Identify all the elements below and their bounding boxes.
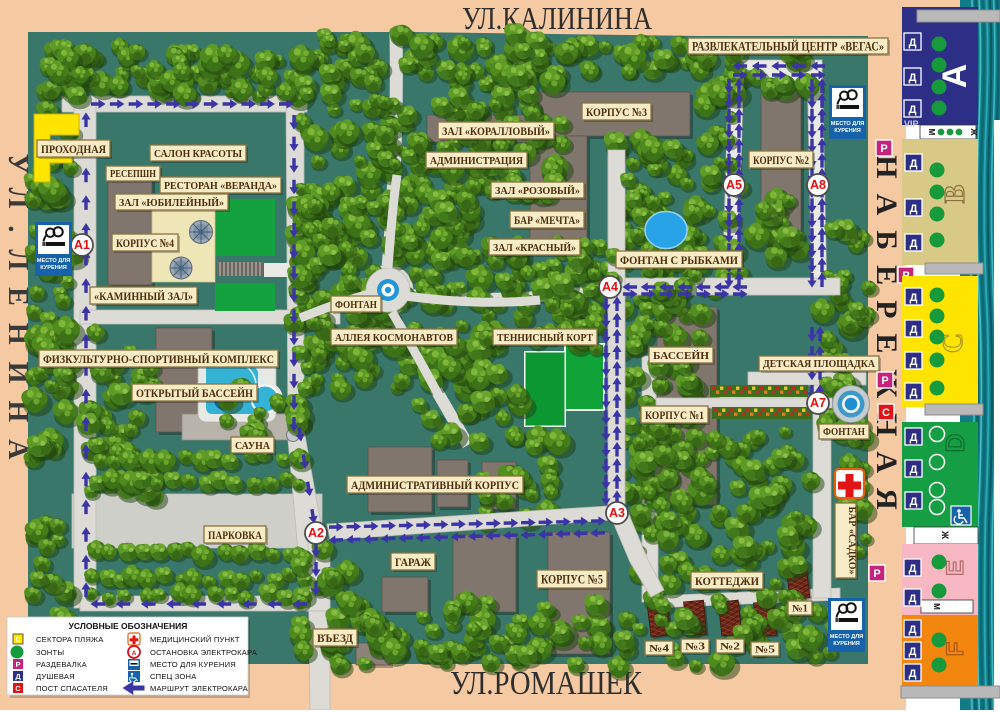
svg-text:Д: Д (909, 72, 917, 84)
svg-text:А2: А2 (308, 526, 324, 540)
svg-text:А4: А4 (602, 280, 618, 294)
svg-text:ДУШЕВАЯ: ДУШЕВАЯ (36, 672, 75, 681)
svg-text:ТЕННИСНЫЙ КОРТ: ТЕННИСНЫЙ КОРТ (497, 332, 594, 344)
svg-text:Ж: Ж (969, 127, 978, 136)
svg-text:Д: Д (909, 593, 917, 605)
svg-text:ГАРАЖ: ГАРАЖ (395, 555, 431, 569)
svg-text:ЗАЛ «ЮБИЛЕЙНЫЙ»: ЗАЛ «ЮБИЛЕЙНЫЙ» (119, 197, 224, 209)
svg-text:№1: №1 (792, 604, 808, 615)
svg-text:ПАРКОВКА: ПАРКОВКА (208, 528, 262, 542)
svg-text:Р: Р (881, 375, 888, 387)
svg-text:КОРПУС №2: КОРПУС №2 (753, 153, 809, 167)
svg-text:СПЕЦ ЗОНА: СПЕЦ ЗОНА (150, 672, 197, 681)
svg-text:МЕСТО ДЛЯ: МЕСТО ДЛЯ (37, 258, 70, 264)
svg-text:Р: Р (880, 143, 887, 155)
svg-text:Д: Д (909, 104, 917, 116)
svg-text:МАРШРУТ ЭЛЕКТРОКАРА: МАРШРУТ ЭЛЕКТРОКАРА (150, 684, 249, 693)
svg-text:РАЗДЕВАЛКА: РАЗДЕВАЛКА (36, 660, 88, 669)
svg-text:МЕСТО ДЛЯ: МЕСТО ДЛЯ (831, 121, 864, 127)
svg-text:МЕСТО ДЛЯ: МЕСТО ДЛЯ (830, 634, 863, 640)
svg-text:А: А (132, 650, 137, 657)
svg-text:КУРЕНИЯ: КУРЕНИЯ (40, 265, 67, 271)
svg-text:КОРПУС №1: КОРПУС №1 (645, 408, 704, 422)
svg-text:Д: Д (909, 646, 917, 658)
svg-text:А8: А8 (810, 178, 826, 192)
svg-text:САУНА: САУНА (235, 440, 270, 452)
svg-text:№3: №3 (685, 642, 705, 653)
svg-text:С: С (15, 684, 21, 693)
svg-text:ФОНТАН С РЫБКАМИ: ФОНТАН С РЫБКАМИ (620, 253, 739, 267)
svg-text:VIP: VIP (904, 119, 919, 129)
svg-text:САЛОН КРАСОТЫ: САЛОН КРАСОТЫ (154, 148, 242, 160)
svg-text:А1: А1 (74, 238, 90, 252)
svg-text:Д: Д (910, 387, 918, 399)
svg-text:М: М (927, 129, 936, 136)
svg-text:МЕСТО ДЛЯ КУРЕНИЯ: МЕСТО ДЛЯ КУРЕНИЯ (150, 660, 236, 669)
svg-text:С: С (15, 637, 20, 644)
svg-text:Д: Д (909, 668, 917, 680)
svg-text:Д: Д (910, 238, 918, 250)
svg-text:ФОНТАН: ФОНТАН (335, 299, 377, 311)
svg-text:Д: Д (910, 292, 918, 304)
svg-text:АЛЛЕЯ КОСМОНАВТОВ: АЛЛЕЯ КОСМОНАВТОВ (335, 332, 454, 344)
svg-text:Д: Д (909, 37, 917, 49)
svg-text:БАР «МЕЧТА»: БАР «МЕЧТА» (514, 213, 580, 227)
svg-text:М: М (932, 603, 941, 610)
svg-text:№5: №5 (755, 645, 775, 656)
svg-text:КОРПУС №4: КОРПУС №4 (116, 236, 174, 250)
svg-text:ЗАЛ «КРАСНЫЙ»: ЗАЛ «КРАСНЫЙ» (493, 242, 576, 254)
svg-text:Д: Д (910, 324, 918, 336)
svg-text:ЗОНТЫ: ЗОНТЫ (36, 648, 64, 657)
svg-text:ЗАЛ «РОЗОВЫЙ»: ЗАЛ «РОЗОВЫЙ» (495, 185, 580, 197)
svg-text:Д: Д (910, 464, 918, 476)
svg-text:Р: Р (873, 568, 880, 580)
svg-text:РЕСТОРАН «ВЕРАНДА»: РЕСТОРАН «ВЕРАНДА» (164, 180, 277, 192)
svg-text:ОТКРЫТЫЙ БАССЕЙН: ОТКРЫТЫЙ БАССЕЙН (136, 386, 254, 400)
svg-text:РАЗВЛЕКАТЕЛЬНЫЙ ЦЕНТР «ВЕГАС»: РАЗВЛЕКАТЕЛЬНЫЙ ЦЕНТР «ВЕГАС» (692, 40, 884, 54)
svg-text:Д: Д (910, 432, 918, 444)
svg-text:АДМИНИСТРАЦИЯ: АДМИНИСТРАЦИЯ (430, 155, 523, 167)
svg-text:А7: А7 (810, 396, 826, 410)
svg-text:А5: А5 (726, 178, 742, 192)
svg-text:ЗАЛ «КОРАЛЛОВЫЙ»: ЗАЛ «КОРАЛЛОВЫЙ» (442, 124, 550, 138)
svg-text:АДМИНИСТРАТИВНЫЙ КОРПУС: АДМИНИСТРАТИВНЫЙ КОРПУС (351, 478, 519, 492)
svg-text:Д: Д (909, 624, 917, 636)
svg-text:СЕКТОРА ПЛЯЖА: СЕКТОРА ПЛЯЖА (36, 635, 104, 644)
svg-text:КУРЕНИЯ: КУРЕНИЯ (833, 641, 860, 647)
svg-text:ДЕТСКАЯ ПЛОЩАДКА: ДЕТСКАЯ ПЛОЩАДКА (763, 359, 876, 370)
svg-text:УСЛОВНЫЕ ОБОЗНАЧЕНИЯ: УСЛОВНЫЕ ОБОЗНАЧЕНИЯ (69, 621, 188, 631)
svg-text:Д: Д (15, 672, 21, 681)
svg-text:КОРПУС №5: КОРПУС №5 (541, 572, 603, 587)
svg-text:В: В (940, 185, 971, 204)
svg-text:НАБЕРЕЖНАЯ: НАБЕРЕЖНАЯ (870, 155, 903, 525)
svg-text:Ж: Ж (940, 530, 950, 540)
svg-text:ФИЗКУЛЬТУРНО-СПОРТИВНЫЙ КОМПЛЕ: ФИЗКУЛЬТУРНО-СПОРТИВНЫЙ КОМПЛЕКС (43, 352, 274, 366)
svg-text:Д: Д (910, 203, 918, 215)
svg-text:А3: А3 (609, 506, 625, 520)
svg-text:МЕДИЦИНСКИЙ ПУНКТ: МЕДИЦИНСКИЙ ПУНКТ (150, 635, 240, 644)
svg-text:ФОНТАН: ФОНТАН (823, 427, 865, 438)
svg-text:ВЪЕЗД: ВЪЕЗД (317, 631, 354, 645)
svg-text:ОСТАНОВКА ЭЛЕКТРОКАРА: ОСТАНОВКА ЭЛЕКТРОКАРА (150, 648, 258, 657)
svg-text:БАССЕЙН: БАССЕЙН (653, 350, 709, 362)
svg-text:КУРЕНИЯ: КУРЕНИЯ (834, 128, 861, 134)
svg-text:Д: Д (910, 496, 918, 508)
svg-text:Д: Д (909, 563, 917, 575)
svg-text:F: F (942, 642, 969, 657)
svg-text:КОРПУС №3: КОРПУС №3 (586, 105, 647, 119)
svg-text:КОТТЕДЖИ: КОТТЕДЖИ (695, 574, 760, 588)
svg-text:ПРОХОДНАЯ: ПРОХОДНАЯ (41, 142, 106, 156)
svg-text:Д: Д (910, 356, 918, 368)
svg-text:Д: Д (910, 158, 918, 170)
svg-text:РЕСЕПШН: РЕСЕПШН (110, 169, 156, 180)
svg-text:БАР «САДКО»: БАР «САДКО» (846, 507, 857, 575)
svg-text:С: С (882, 407, 890, 419)
svg-text:«КАМИННЫЙ ЗАЛ»: «КАМИННЫЙ ЗАЛ» (94, 289, 193, 303)
svg-text:УЛ.КАЛИНИНА: УЛ.КАЛИНИНА (462, 0, 652, 36)
svg-text:ПОСТ СПАСАТЕЛЯ: ПОСТ СПАСАТЕЛЯ (36, 684, 108, 693)
svg-text:№4: №4 (649, 644, 669, 655)
svg-text:Р: Р (15, 660, 20, 669)
svg-text:№2: №2 (720, 642, 740, 653)
